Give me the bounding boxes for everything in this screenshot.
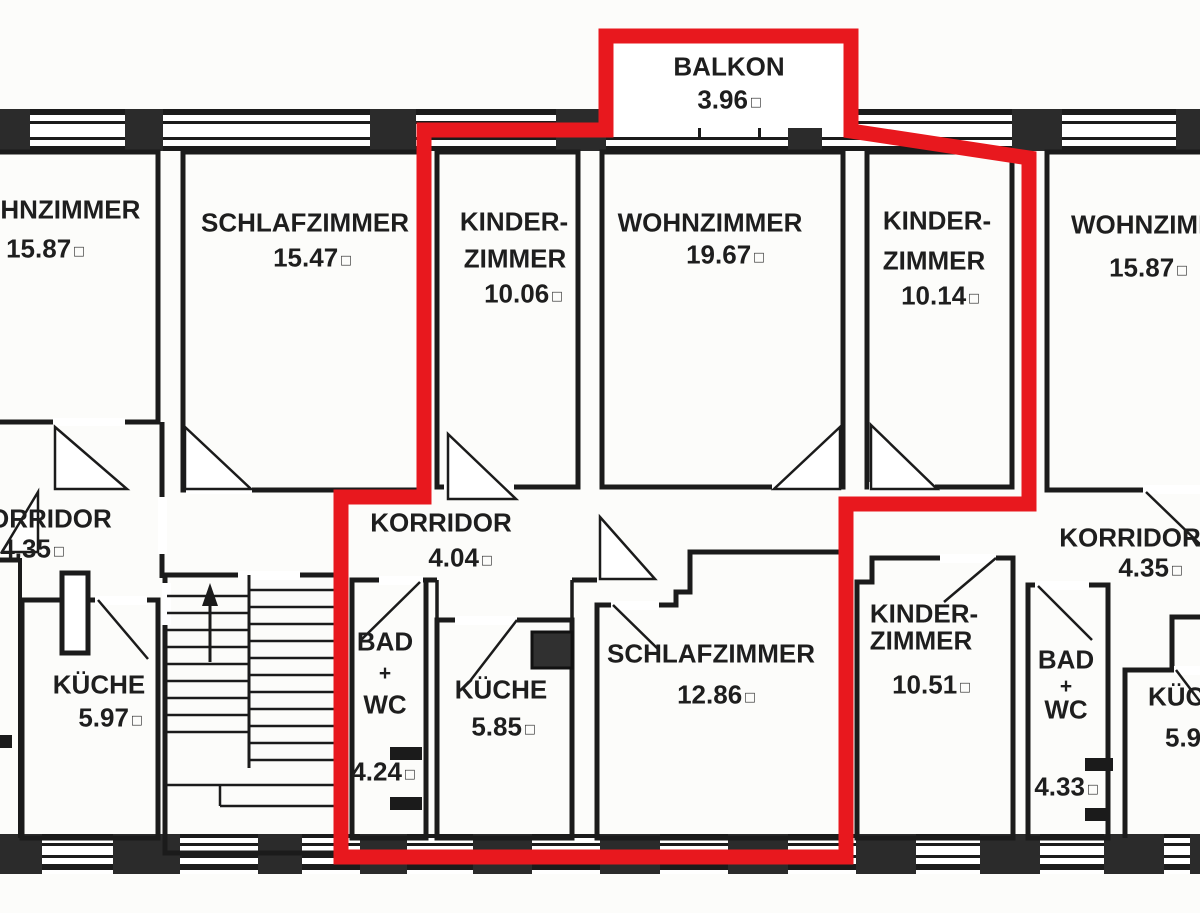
- bad-wc-right-line1: BAD: [1038, 645, 1094, 676]
- bad-wc-right-area: 4.33□: [1034, 772, 1097, 803]
- kinderzimmer-right-area: 10.14□: [901, 281, 979, 312]
- korridor-left-name: KORRIDOR: [0, 504, 112, 535]
- kueche-right-area: 5.9: [1165, 723, 1200, 754]
- kinderzimmer-left-name1: KINDER-: [460, 207, 568, 238]
- kueche-left-name: KÜCHE: [53, 670, 145, 701]
- bad-wc-right-line3: WC: [1044, 695, 1087, 726]
- korridor-mid-name: KORRIDOR: [370, 508, 512, 539]
- wohnzimmer-mid-name: WOHNZIMMER: [618, 208, 803, 239]
- balkon-area: 3.96□: [697, 85, 760, 116]
- bad-wc-mid-plus: +: [379, 662, 391, 686]
- kueche-right-name: KÜCHE: [1148, 682, 1200, 713]
- wohnzimmer-left-area: 15.87□: [6, 234, 84, 265]
- korridor-mid-area: 4.04□: [428, 543, 491, 574]
- kueche-mid-name: KÜCHE: [455, 675, 547, 706]
- floorplan-drawing: [0, 0, 1200, 913]
- chimney-shaft: [532, 632, 572, 668]
- balkon-name: BALKON: [673, 52, 784, 83]
- kinderzimmer-bottom-name2: ZIMMER: [870, 626, 973, 657]
- korridor-right-area: 4.35□: [1118, 553, 1181, 584]
- bad-wc-mid-area: 4.24□: [351, 757, 414, 788]
- apartment-highlight-outline: [341, 36, 1029, 857]
- bad-wc-mid-line1: BAD: [357, 627, 413, 658]
- schlafzimmer-top-name: SCHLAFZIMMER: [201, 208, 409, 239]
- schlafzimmer-bottom-name: SCHLAFZIMMER: [607, 639, 815, 670]
- wohnzimmer-right-name: WOHNZIMMER: [1071, 210, 1200, 241]
- kueche-mid-area: 5.85□: [471, 712, 534, 743]
- kueche-left-area: 5.97□: [78, 703, 141, 734]
- kinderzimmer-right-name2: ZIMMER: [883, 246, 986, 277]
- kinderzimmer-right-name1: KINDER-: [883, 206, 991, 237]
- schlafzimmer-top-area: 15.47□: [273, 243, 351, 274]
- kinderzimmer-bottom-area: 10.51□: [892, 670, 970, 701]
- kinderzimmer-left-name2: ZIMMER: [464, 244, 567, 275]
- korridor-right-name: KORRIDOR: [1059, 523, 1200, 554]
- staircase: [167, 575, 335, 806]
- wohnzimmer-mid-area: 19.67□: [686, 240, 764, 271]
- wohnzimmer-right-area: 15.87□: [1109, 253, 1187, 284]
- kinderzimmer-left-area: 10.06□: [484, 279, 562, 310]
- wohnzimmer-left-name: WOHNZIMMER: [0, 195, 140, 226]
- schlafzimmer-bottom-area: 12.86□: [677, 680, 755, 711]
- sqm-icon: □: [751, 94, 761, 113]
- korridor-left-area: 4.35□: [0, 534, 63, 565]
- floor-plan-scan: BALKON 3.96□ WOHNZIMMER 15.87□ SCHLAFZIM…: [0, 0, 1200, 913]
- bad-wc-mid-line3: WC: [363, 690, 406, 721]
